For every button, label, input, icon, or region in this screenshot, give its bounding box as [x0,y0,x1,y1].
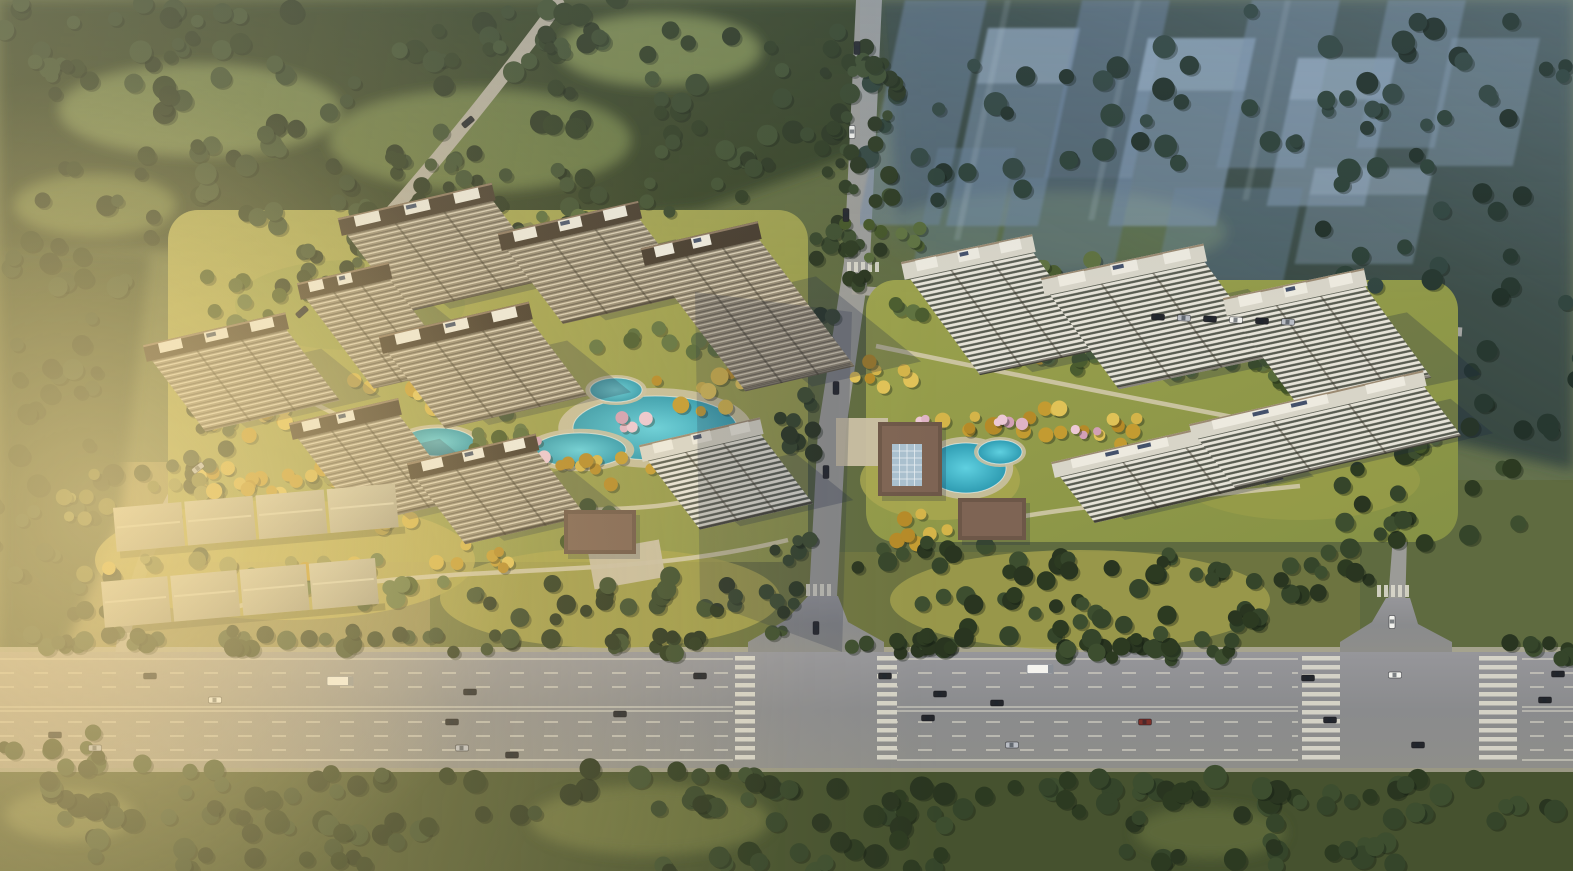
aerial-render-stage [0,0,1573,871]
sun-glow-layer [0,0,1573,871]
aerial-residential-render [0,0,1573,871]
